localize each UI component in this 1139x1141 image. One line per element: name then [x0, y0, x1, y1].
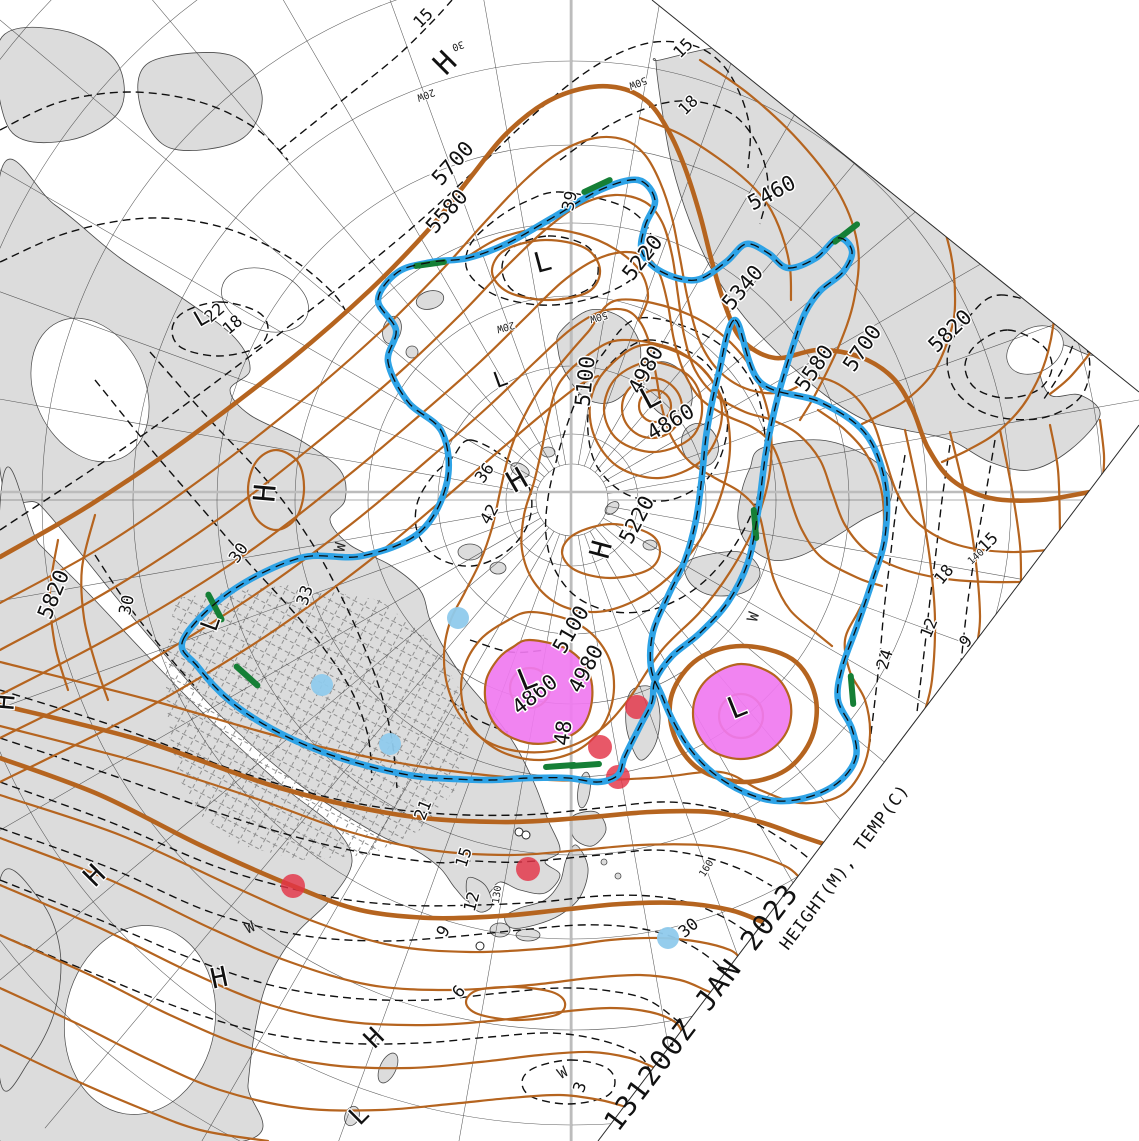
- pressure-center-marker: H: [247, 483, 283, 504]
- warm-anomaly-dot: [516, 857, 540, 881]
- height-contour-label: 48: [549, 719, 576, 747]
- weather-chart-page: 5700558054605340522058205820570055805220…: [0, 0, 1139, 1141]
- landmass: [615, 873, 621, 879]
- cold-anomaly-dot: [379, 733, 401, 755]
- landmass: [490, 562, 506, 574]
- cold-anomaly-dot: [311, 674, 333, 696]
- landmass: [601, 859, 607, 865]
- station-circle: [522, 831, 530, 839]
- cold-anomaly-dot: [657, 927, 679, 949]
- cold-anomaly-dot: [447, 607, 469, 629]
- temp-contour-label: 39: [558, 189, 581, 212]
- weather-map: 5700558054605340522058205820570055805220…: [0, 0, 1139, 1141]
- warm-anomaly-dot: [281, 874, 305, 898]
- landmass: [458, 544, 482, 560]
- isotherm-overlap-segment: [571, 764, 599, 766]
- landmass: [138, 53, 262, 151]
- landmass: [516, 929, 540, 941]
- isotherm-overlap-segment: [851, 676, 853, 704]
- pressure-center-marker: H: [0, 693, 22, 711]
- landmass: [541, 447, 555, 457]
- landmass: [490, 923, 510, 937]
- warm-anomaly-dot: [588, 735, 612, 759]
- temp-contour-label: 30: [115, 593, 138, 616]
- station-circle: [476, 942, 484, 950]
